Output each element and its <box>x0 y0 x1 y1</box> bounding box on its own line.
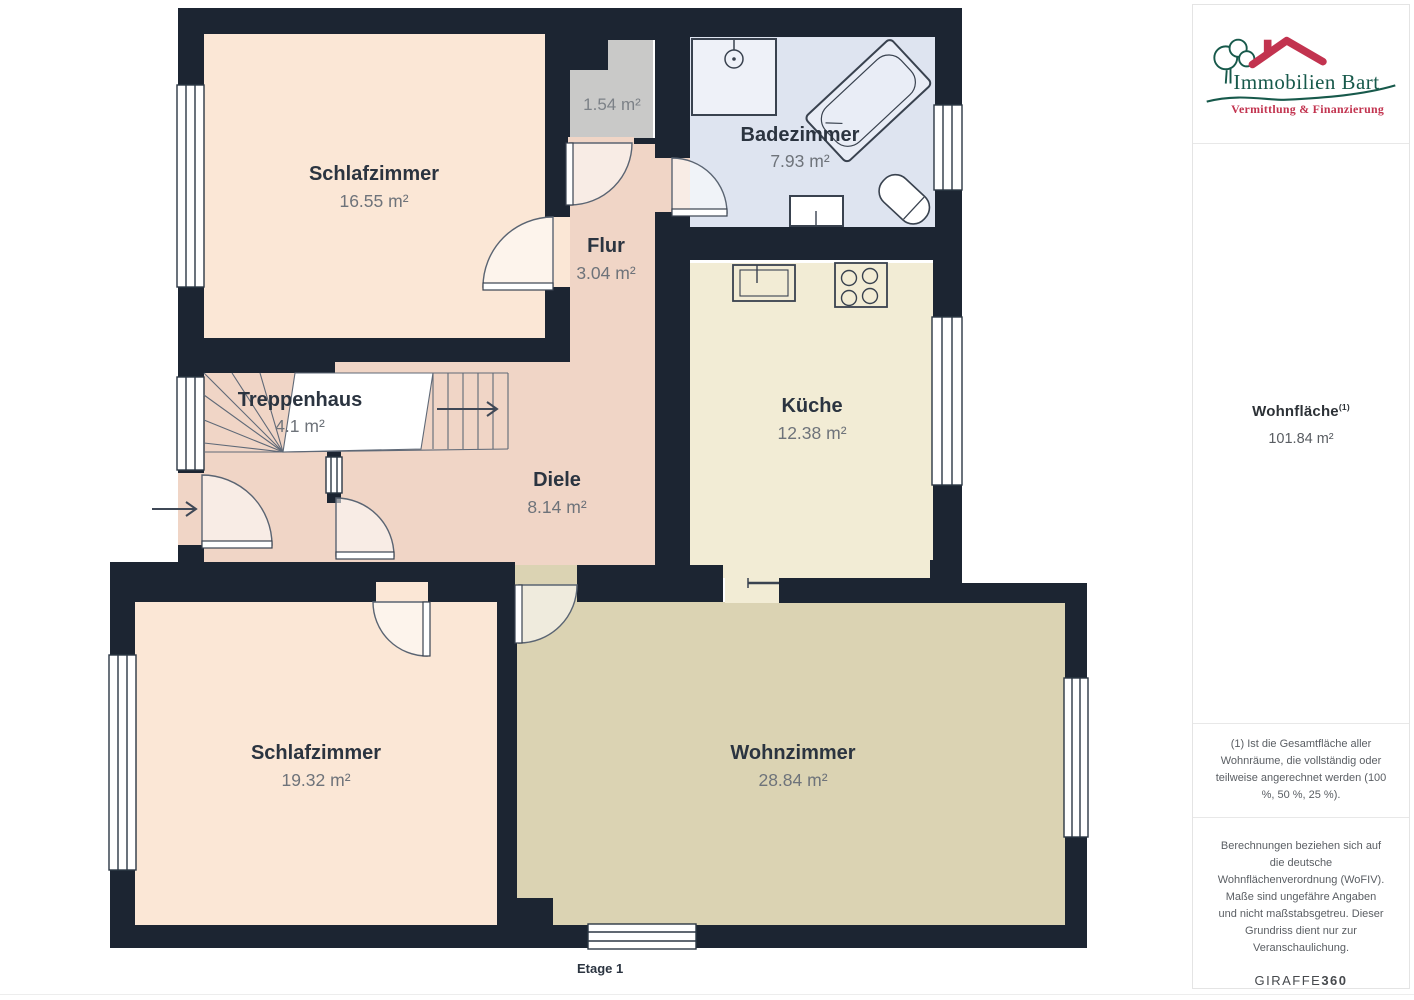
room-label-name: Schlafzimmer <box>309 163 439 185</box>
window-symbol <box>326 457 342 493</box>
room-label-name: Treppenhaus <box>238 389 362 411</box>
living-area-superscript: (1) <box>1339 402 1350 412</box>
window-symbol <box>177 377 204 470</box>
room-label-area: 7.93 m² <box>770 151 829 171</box>
window-symbol <box>109 655 136 870</box>
footnote-disclaimer-section: Berechnungen beziehen sich auf die deuts… <box>1193 818 1409 988</box>
window-symbol <box>588 924 696 949</box>
window-symbol <box>934 105 962 190</box>
room-label-area: 16.55 m² <box>339 191 408 211</box>
room-label-area: 28.84 m² <box>758 770 827 790</box>
room-label-area: 8.14 m² <box>527 497 586 517</box>
window-symbol <box>177 85 204 287</box>
agency-logo-section: Immobilien Bart Vermittlung & Finanzieru… <box>1193 5 1409 144</box>
logo-brand-text: Immobilien Bart <box>1233 70 1379 94</box>
living-area-summary: Wohnfläche(1) 101.84 m² <box>1193 144 1409 724</box>
floor-label: Etage 1 <box>577 961 623 976</box>
living-area-value: 101.84 m² <box>1193 431 1409 447</box>
room-label-name: Wohnzimmer <box>730 742 855 764</box>
room-label-name: Schlafzimmer <box>251 742 381 764</box>
room-label-name: Flur <box>587 235 625 257</box>
giraffe360-suffix: 360 <box>1321 973 1347 988</box>
living-area-title: Wohnfläche <box>1252 403 1339 420</box>
room-kueche-floor <box>690 263 933 578</box>
room-label-name: Küche <box>781 395 842 417</box>
room-label-area: 3.04 m² <box>576 263 635 283</box>
room-label-area: 19.32 m² <box>281 770 350 790</box>
footnote-area-definition: (1) Ist die Gesamtfläche aller Wohnräume… <box>1193 724 1409 818</box>
giraffe360-name: GIRAFFE <box>1254 973 1321 988</box>
sink-symbol <box>790 196 843 226</box>
footnote-area-text: (1) Ist die Gesamtfläche aller Wohnräume… <box>1193 736 1409 804</box>
shower-symbol <box>692 39 776 115</box>
roof-icon <box>1252 40 1322 65</box>
page-bottom-divider <box>0 994 1414 995</box>
floor-plan-drawing: Schlafzimmer 16.55 m² Badezimmer 7.93 m²… <box>0 0 1192 1000</box>
room-label-name: Badezimmer <box>741 124 860 146</box>
room-label-area: 4.1 m² <box>275 416 325 436</box>
logo-tagline-text: Vermittlung & Finanzierung <box>1231 102 1384 116</box>
info-panel: Immobilien Bart Vermittlung & Finanzieru… <box>1192 4 1410 989</box>
entry-arrow-icon <box>152 502 196 516</box>
giraffe360-logo: GIRAFFE360 <box>1217 973 1385 988</box>
immobilien-bart-logo: Immobilien Bart Vermittlung & Finanzieru… <box>1201 24 1401 124</box>
window-symbol <box>932 317 962 485</box>
room-label-name: Diele <box>533 469 581 491</box>
floor-plan: Schlafzimmer 16.55 m² Badezimmer 7.93 m²… <box>0 0 1192 1000</box>
window-symbol <box>1064 678 1088 837</box>
floorplan-page: Schlafzimmer 16.55 m² Badezimmer 7.93 m²… <box>0 0 1414 1000</box>
room-label-area: 1.54 m² <box>583 95 641 114</box>
footnote-disclaimer-text: Berechnungen beziehen sich auf die deuts… <box>1217 838 1385 957</box>
room-label-area: 12.38 m² <box>777 423 846 443</box>
living-area-label: Wohnfläche(1) <box>1193 402 1409 420</box>
